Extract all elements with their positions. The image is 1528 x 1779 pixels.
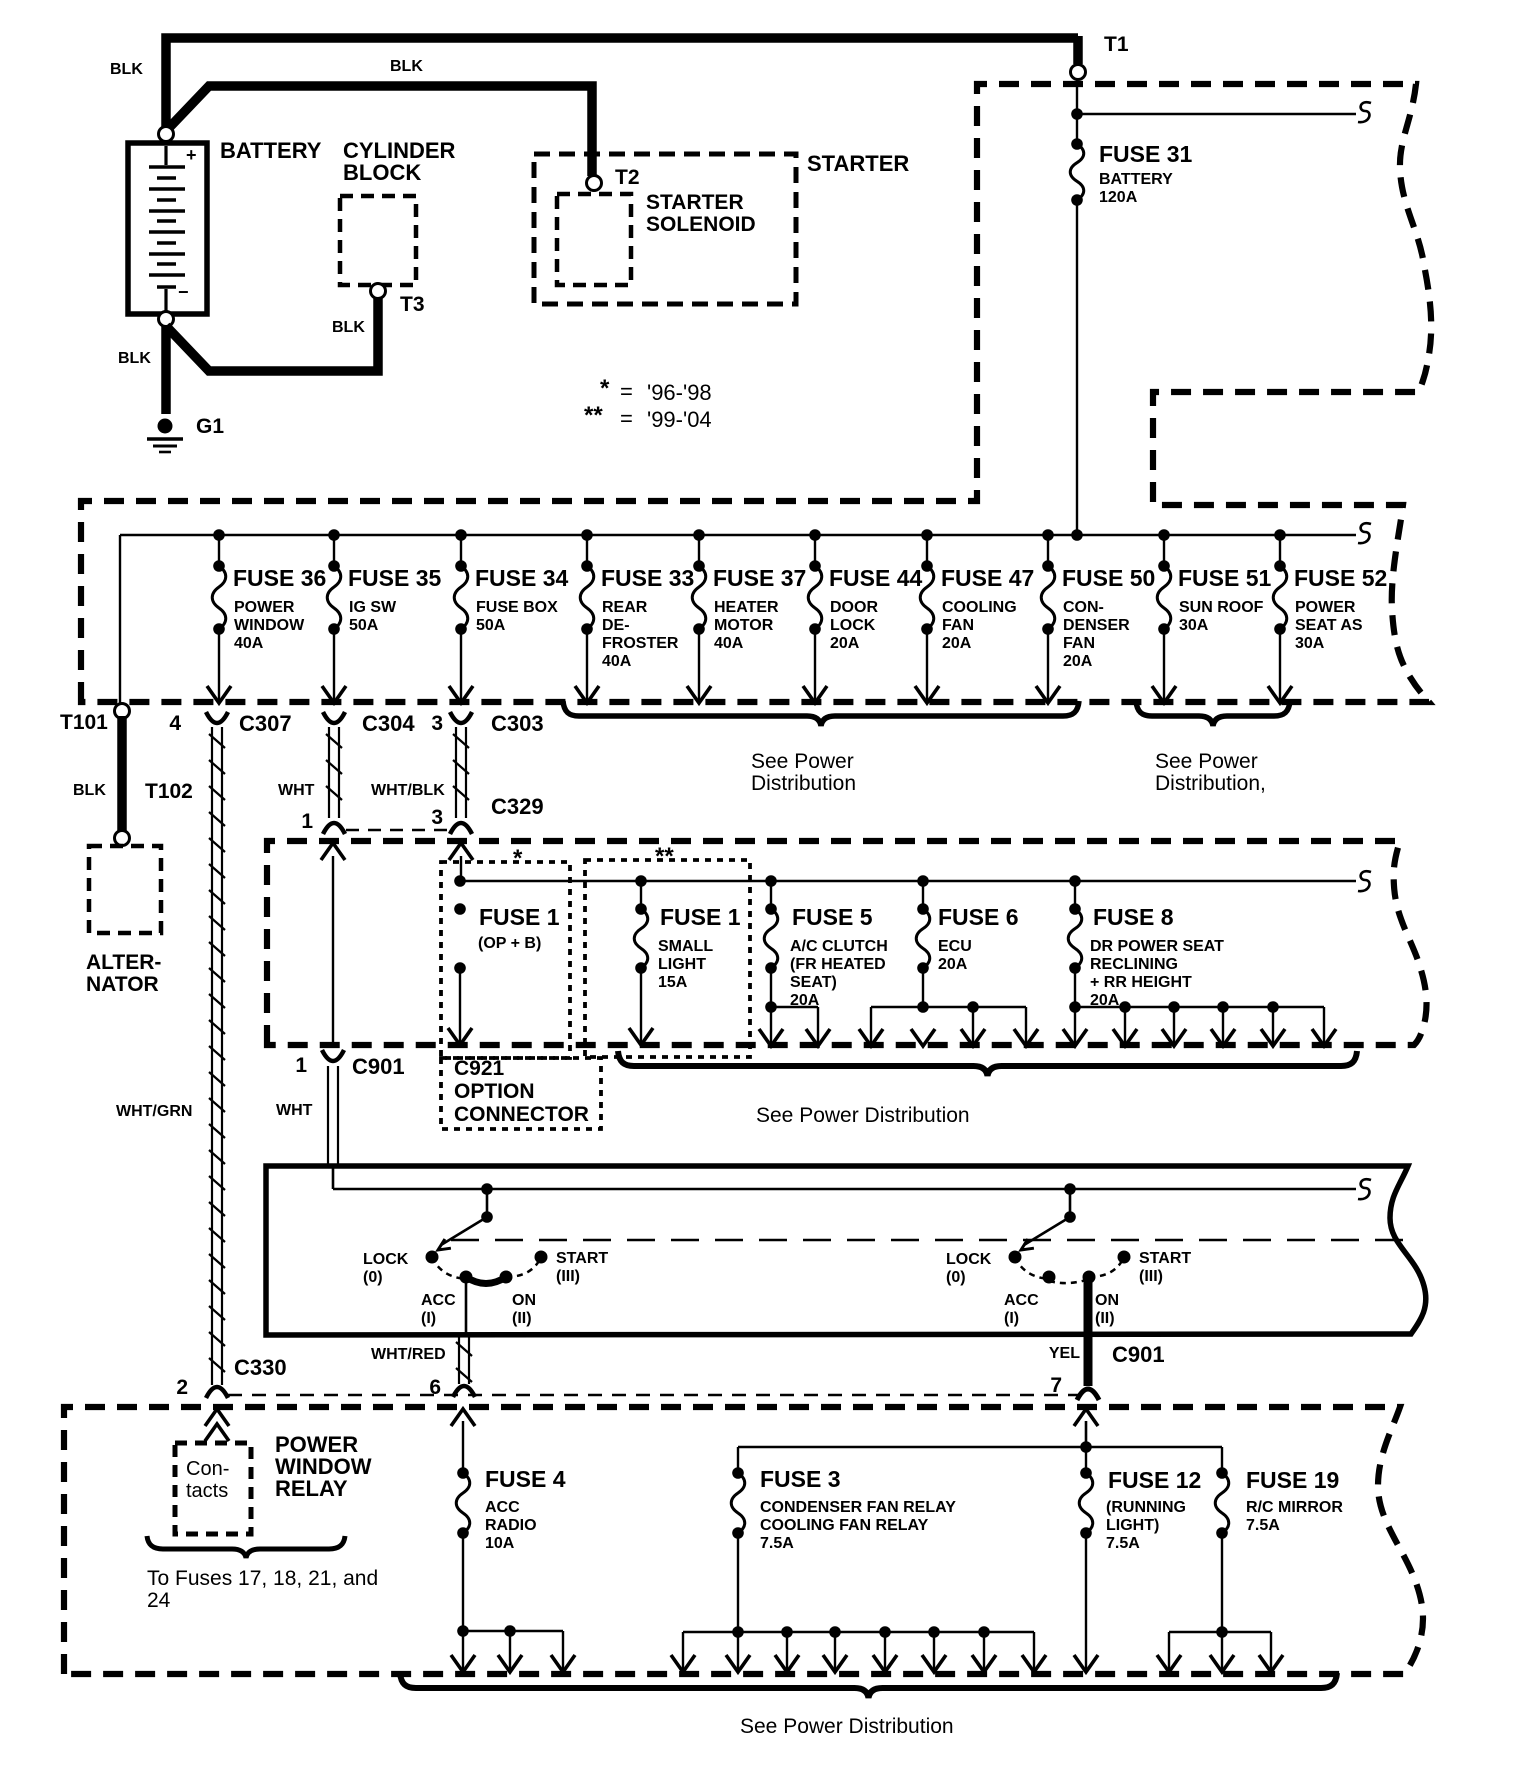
svg-text:LIGHT): LIGHT) xyxy=(1106,1517,1159,1534)
svg-text:FUSE 31: FUSE 31 xyxy=(1099,141,1193,167)
svg-text:ECU: ECU xyxy=(938,938,972,955)
svg-text:FUSE 19: FUSE 19 xyxy=(1246,1467,1339,1493)
svg-text:WHT/BLK: WHT/BLK xyxy=(371,782,445,799)
svg-text:FUSE 35: FUSE 35 xyxy=(348,565,442,591)
svg-text:**: ** xyxy=(584,402,603,429)
svg-text:FAN: FAN xyxy=(1063,635,1095,652)
svg-text:FUSE 1: FUSE 1 xyxy=(479,904,560,930)
svg-text:10A: 10A xyxy=(485,1535,515,1552)
svg-text:+: + xyxy=(186,145,197,165)
svg-text:LOCK: LOCK xyxy=(830,617,876,634)
svg-text:20A: 20A xyxy=(830,635,860,652)
svg-text:FUSE 1: FUSE 1 xyxy=(660,904,741,930)
svg-text:FUSE 6: FUSE 6 xyxy=(938,904,1019,930)
svg-text:30A: 30A xyxy=(1295,635,1325,652)
svg-text:HEATER: HEATER xyxy=(714,599,779,616)
svg-text:(0): (0) xyxy=(946,1269,966,1286)
svg-text:BATTERY: BATTERY xyxy=(1099,171,1173,188)
svg-text:C329: C329 xyxy=(491,794,544,819)
svg-text:20A: 20A xyxy=(938,956,968,973)
svg-text:(III): (III) xyxy=(556,1268,580,1285)
svg-text:ALTER-: ALTER- xyxy=(86,951,161,974)
svg-text:(III): (III) xyxy=(1139,1268,1163,1285)
svg-text:2: 2 xyxy=(176,1376,188,1399)
svg-text:3: 3 xyxy=(431,806,443,829)
svg-text:COOLING: COOLING xyxy=(942,599,1017,616)
svg-text:FUSE 51: FUSE 51 xyxy=(1178,565,1272,591)
svg-text:FROSTER: FROSTER xyxy=(602,635,679,652)
svg-text:FUSE 47: FUSE 47 xyxy=(941,565,1034,591)
svg-text:ON: ON xyxy=(512,1292,536,1309)
svg-text:7.5A: 7.5A xyxy=(1246,1517,1280,1534)
svg-text:To Fuses 17, 18, 21, and: To Fuses 17, 18, 21, and xyxy=(147,1567,378,1590)
svg-text:DENSER: DENSER xyxy=(1063,617,1130,634)
svg-text:4: 4 xyxy=(169,712,181,735)
svg-text:NATOR: NATOR xyxy=(86,973,159,996)
svg-text:3: 3 xyxy=(431,712,443,735)
svg-text:1: 1 xyxy=(295,1054,307,1077)
svg-text:FUSE BOX: FUSE BOX xyxy=(476,599,558,616)
svg-text:40A: 40A xyxy=(714,635,744,652)
svg-text:See Power Distribution: See Power Distribution xyxy=(756,1104,970,1127)
svg-text:7.5A: 7.5A xyxy=(1106,1535,1140,1552)
svg-text:=: = xyxy=(620,406,633,431)
svg-text:T1: T1 xyxy=(1104,33,1129,56)
svg-text:ON: ON xyxy=(1095,1292,1119,1309)
svg-text:(II): (II) xyxy=(1095,1310,1115,1327)
svg-text:FAN: FAN xyxy=(942,617,974,634)
svg-text:BLOCK: BLOCK xyxy=(343,160,421,185)
svg-text:C921: C921 xyxy=(454,1057,505,1080)
svg-text:(OP + B): (OP + B) xyxy=(478,935,541,952)
svg-text:FUSE 34: FUSE 34 xyxy=(475,565,569,591)
svg-text:+ RR HEIGHT: + RR HEIGHT xyxy=(1090,974,1192,991)
svg-text:SMALL: SMALL xyxy=(658,938,713,955)
svg-text:FUSE 44: FUSE 44 xyxy=(829,565,923,591)
svg-text:(0): (0) xyxy=(363,1269,383,1286)
svg-text:C304: C304 xyxy=(362,711,415,736)
svg-text:15A: 15A xyxy=(658,974,688,991)
svg-text:Con-: Con- xyxy=(186,1458,229,1480)
svg-text:ACC: ACC xyxy=(1004,1292,1039,1309)
svg-text:7: 7 xyxy=(1050,1374,1062,1397)
svg-text:DE-: DE- xyxy=(602,617,630,634)
svg-text:(RUNNING: (RUNNING xyxy=(1106,1499,1186,1516)
svg-text:START: START xyxy=(1139,1250,1191,1267)
svg-text:BLK: BLK xyxy=(110,61,143,78)
svg-text:See Power Distribution: See Power Distribution xyxy=(740,1715,954,1738)
svg-text:Distribution,: Distribution, xyxy=(1155,772,1266,795)
svg-text:LIGHT: LIGHT xyxy=(658,956,706,973)
svg-text:50A: 50A xyxy=(476,617,506,634)
svg-text:(I): (I) xyxy=(1004,1310,1019,1327)
svg-text:FUSE 37: FUSE 37 xyxy=(713,565,806,591)
svg-text:'99-'04: '99-'04 xyxy=(647,407,712,432)
svg-text:(I): (I) xyxy=(421,1310,436,1327)
svg-text:WINDOW: WINDOW xyxy=(234,617,305,634)
svg-text:−: − xyxy=(178,282,189,302)
svg-text:FUSE 5: FUSE 5 xyxy=(792,904,873,930)
svg-text:RADIO: RADIO xyxy=(485,1517,537,1534)
svg-text:=: = xyxy=(620,379,633,404)
svg-text:COOLING FAN RELAY: COOLING FAN RELAY xyxy=(760,1517,929,1534)
svg-text:**: ** xyxy=(655,843,674,870)
svg-text:C303: C303 xyxy=(491,711,544,736)
svg-text:SOLENOID: SOLENOID xyxy=(646,213,756,236)
svg-text:*: * xyxy=(600,375,610,402)
svg-text:BLK: BLK xyxy=(73,782,106,799)
svg-text:C901: C901 xyxy=(352,1054,405,1079)
svg-text:WHT: WHT xyxy=(276,1102,313,1119)
svg-text:20A: 20A xyxy=(790,992,820,1009)
svg-text:40A: 40A xyxy=(602,653,632,670)
svg-text:CONDENSER FAN RELAY: CONDENSER FAN RELAY xyxy=(760,1499,956,1516)
svg-text:FUSE 52: FUSE 52 xyxy=(1294,565,1387,591)
svg-text:1: 1 xyxy=(301,810,313,833)
svg-text:*: * xyxy=(513,845,523,872)
svg-text:R/C MIRROR: R/C MIRROR xyxy=(1246,1499,1343,1516)
svg-text:IG SW: IG SW xyxy=(349,599,397,616)
svg-text:STARTER: STARTER xyxy=(807,151,909,176)
svg-text:START: START xyxy=(556,1250,608,1267)
svg-text:SEAT AS: SEAT AS xyxy=(1295,617,1363,634)
svg-text:DOOR: DOOR xyxy=(830,599,878,616)
svg-text:T2: T2 xyxy=(615,166,640,189)
svg-text:A/C CLUTCH: A/C CLUTCH xyxy=(790,938,888,955)
svg-text:G1: G1 xyxy=(196,415,224,438)
svg-text:FUSE 36: FUSE 36 xyxy=(233,565,326,591)
svg-text:BLK: BLK xyxy=(118,350,151,367)
svg-text:C901: C901 xyxy=(1112,1342,1165,1367)
svg-text:MOTOR: MOTOR xyxy=(714,617,774,634)
svg-text:RECLINING: RECLINING xyxy=(1090,956,1178,973)
svg-text:SUN ROOF: SUN ROOF xyxy=(1179,599,1264,616)
svg-text:OPTION: OPTION xyxy=(454,1080,535,1103)
svg-text:WHT/RED: WHT/RED xyxy=(371,1346,446,1363)
svg-text:T101: T101 xyxy=(60,711,108,734)
svg-text:FUSE 4: FUSE 4 xyxy=(485,1466,566,1492)
svg-text:20A: 20A xyxy=(1063,653,1093,670)
svg-text:See Power: See Power xyxy=(1155,750,1258,773)
svg-text:ACC: ACC xyxy=(485,1499,520,1516)
svg-text:tacts: tacts xyxy=(186,1480,228,1502)
svg-text:FUSE 12: FUSE 12 xyxy=(1108,1467,1201,1493)
svg-text:YEL: YEL xyxy=(1049,1345,1080,1362)
svg-text:CON-: CON- xyxy=(1063,599,1104,616)
svg-text:20A: 20A xyxy=(942,635,972,652)
svg-text:CONNECTOR: CONNECTOR xyxy=(454,1103,589,1126)
svg-text:30A: 30A xyxy=(1179,617,1209,634)
svg-text:REAR: REAR xyxy=(602,599,648,616)
svg-text:ACC: ACC xyxy=(421,1292,456,1309)
svg-text:WHT/GRN: WHT/GRN xyxy=(116,1103,192,1120)
svg-text:SEAT): SEAT) xyxy=(790,974,837,991)
svg-text:C307: C307 xyxy=(239,711,292,736)
svg-text:C330: C330 xyxy=(234,1355,287,1380)
svg-text:RELAY: RELAY xyxy=(275,1476,348,1501)
svg-text:LOCK: LOCK xyxy=(363,1251,409,1268)
svg-text:T3: T3 xyxy=(400,293,425,316)
svg-text:(II): (II) xyxy=(512,1310,532,1327)
svg-text:7.5A: 7.5A xyxy=(760,1535,794,1552)
svg-text:T102: T102 xyxy=(145,780,193,803)
svg-text:24: 24 xyxy=(147,1589,171,1612)
svg-text:POWER: POWER xyxy=(1295,599,1356,616)
svg-text:FUSE 33: FUSE 33 xyxy=(601,565,694,591)
svg-text:BLK: BLK xyxy=(390,58,423,75)
svg-text:50A: 50A xyxy=(349,617,379,634)
svg-text:LOCK: LOCK xyxy=(946,1251,992,1268)
svg-text:(FR HEATED: (FR HEATED xyxy=(790,956,886,973)
svg-text:40A: 40A xyxy=(234,635,264,652)
svg-text:See Power: See Power xyxy=(751,750,854,773)
svg-text:STARTER: STARTER xyxy=(646,191,744,214)
svg-text:BATTERY: BATTERY xyxy=(220,138,322,163)
svg-text:WHT: WHT xyxy=(278,782,315,799)
svg-text:DR POWER SEAT: DR POWER SEAT xyxy=(1090,938,1224,955)
svg-text:BLK: BLK xyxy=(332,319,365,336)
svg-text:120A: 120A xyxy=(1099,189,1138,206)
svg-text:FUSE 3: FUSE 3 xyxy=(760,1466,841,1492)
svg-text:Distribution: Distribution xyxy=(751,772,856,795)
svg-text:FUSE 50: FUSE 50 xyxy=(1062,565,1155,591)
svg-text:20A: 20A xyxy=(1090,992,1120,1009)
svg-text:'96-'98: '96-'98 xyxy=(647,380,712,405)
svg-text:FUSE 8: FUSE 8 xyxy=(1093,904,1174,930)
svg-text:POWER: POWER xyxy=(234,599,295,616)
